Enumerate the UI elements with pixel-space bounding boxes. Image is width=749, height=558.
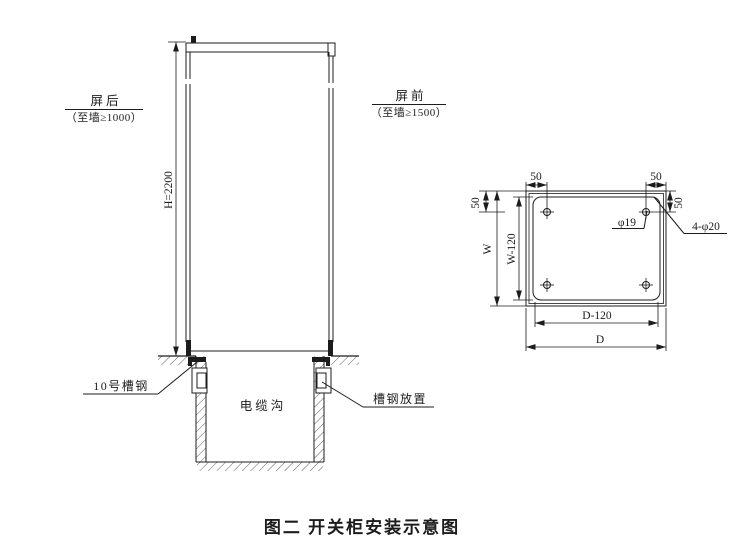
dim-d-minus-120-text: D-120 [582, 310, 612, 322]
cabinet-foot-left [186, 340, 191, 356]
cable-trench: 电缆沟 [188, 356, 331, 471]
corner-holes-callout: 4-φ20 [654, 197, 727, 234]
side-view: H=2200 屏后 （至墙≥1000） 屏前 （至墙≥1500） [65, 36, 447, 471]
dim-50-top-right-text: 50 [650, 171, 662, 183]
dim-50-right-text: 50 [673, 197, 685, 209]
cabinet-outline [186, 36, 335, 356]
corner-holes-text: 4-φ20 [692, 221, 720, 233]
dim-50-left: 50 [470, 191, 526, 212]
figure-canvas: H=2200 屏后 （至墙≥1000） 屏前 （至墙≥1500） [0, 0, 749, 558]
channel-placement-callout: 槽钢放置 [322, 382, 434, 407]
channel-placement-text: 槽钢放置 [373, 391, 427, 406]
rear-clearance-label: 屏后 （至墙≥1000） [65, 94, 143, 124]
mounting-plate [533, 197, 660, 300]
dim-50-left-text: 50 [470, 197, 482, 209]
figure-caption: 图二 开关柜安装示意图 [264, 517, 460, 537]
bolt-hole [639, 278, 653, 292]
hole-diameter-text: φ19 [618, 217, 636, 229]
channel-steel-callout: 10号槽钢 [83, 362, 197, 394]
rear-clearance-text: （至墙≥1000） [66, 110, 143, 124]
height-dim-text: H=2200 [163, 171, 175, 209]
dim-d-text: D [596, 334, 604, 346]
channel-steel-right [316, 368, 331, 393]
dim-w-minus-120-text: W-120 [506, 233, 518, 265]
installation-diagram: H=2200 屏后 （至墙≥1000） 屏前 （至墙≥1500） [0, 0, 749, 558]
dim-w-text: W [482, 243, 494, 254]
dim-50-top-left-text: 50 [530, 171, 542, 183]
channel-steel-text: 10号槽钢 [93, 379, 149, 393]
channel-steel-left [192, 368, 207, 393]
front-clearance-text: （至墙≥1500） [371, 105, 448, 119]
front-clearance-label: 屏前 （至墙≥1500） [371, 88, 448, 119]
plan-view: 50 50 50 W W-120 [470, 171, 727, 351]
bolt-hole [540, 205, 554, 219]
hole-diameter-callout: φ19 [612, 211, 647, 229]
rear-label-text: 屏后 [90, 94, 121, 108]
lifting-lug [191, 36, 196, 43]
bolt-hole [540, 278, 554, 292]
cable-trench-text: 电缆沟 [240, 399, 287, 413]
height-dimension: H=2200 [163, 42, 186, 356]
front-label-text: 屏前 [395, 88, 426, 103]
cabinet-foot-right [328, 340, 333, 356]
